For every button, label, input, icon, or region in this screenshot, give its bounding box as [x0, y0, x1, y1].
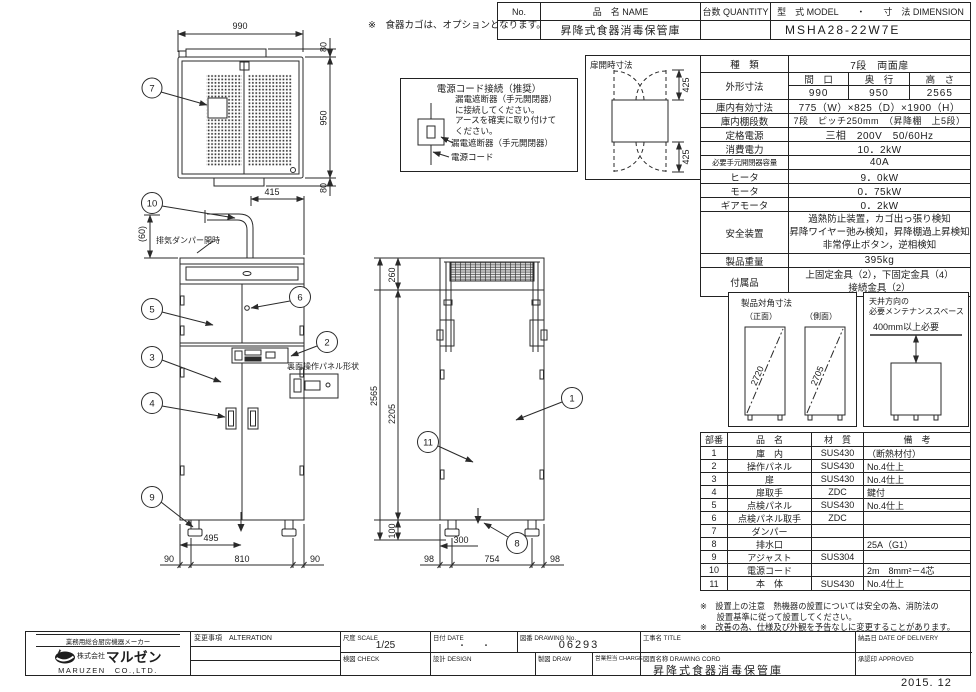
table-cell: [864, 551, 970, 563]
damper-note: 排気ダンパー開時: [156, 235, 220, 245]
door-swing-diagram: 425 425: [586, 56, 702, 179]
power-instruction-line: 漏電遮断器（手元開閉器）: [455, 94, 557, 105]
header-qty-label: 台数 QUANTITY: [701, 3, 771, 21]
dim-header: 奥 行: [849, 73, 909, 86]
project-title-label: 工事名 TITLE: [643, 633, 681, 642]
safety-devices: 過熱防止装置，カゴ出っ張り検知 昇降ワイヤー弛み検知，昇降棚過上昇検知 非常停止…: [789, 212, 970, 253]
table-cell: 10: [701, 564, 728, 576]
spec-value: 10．2kW: [789, 142, 970, 155]
table-cell: SUS304: [812, 551, 864, 563]
charge-label: 営業担当 CHARGE: [595, 654, 643, 662]
check-label: 検図 CHECK: [343, 654, 379, 663]
callout-1: 1: [516, 388, 583, 421]
callout-8-number: 8: [514, 539, 519, 550]
spec-label: 種 類: [701, 56, 789, 72]
power-box-instructions: 漏電遮断器（手元開閉器） に接続してください。 アースを確実に取り付けて くださ…: [455, 94, 557, 136]
power-box-title: 電源コード接続（推奨）: [401, 81, 577, 95]
table-cell: 扉取手: [728, 486, 812, 498]
callout-4-number: 4: [149, 399, 154, 410]
table-cell: No.4仕上: [864, 473, 970, 485]
maintenance-box: 天井方向の 必要メンテナンススペース 400mm以上必要: [863, 292, 969, 427]
side-left-margin-dim: 98: [424, 554, 434, 564]
header-table: No. 品 名 NAME 台数 QUANTITY 型 式 MODEL ・ 寸 法…: [497, 2, 971, 40]
side-total-height-dim: 2565: [369, 386, 379, 406]
spec-value: 0．2kW: [789, 198, 970, 211]
parts-header-row: 部番 品 名 材 質 備 考: [701, 433, 970, 447]
company-name-en: MARUZEN CO.,LTD.: [26, 665, 190, 676]
table-cell: 点検パネル: [728, 499, 812, 511]
maintenance-title-2: 必要メンテナンススペース: [869, 306, 964, 317]
date-value: ・ ・: [431, 640, 517, 651]
table-cell: 庫 内: [728, 447, 812, 459]
table-row: 9アジャストSUS304: [701, 551, 970, 564]
safety-line: 非常停止ボタン，逆相検知: [823, 239, 937, 252]
table-cell: [864, 512, 970, 524]
design-cell: 設計 DESIGN: [431, 653, 536, 675]
table-cell: ダンパー: [728, 525, 812, 537]
date-stamp: 2015. 12: [901, 677, 952, 689]
alteration-row: [191, 647, 340, 662]
accessory-line: 上固定金具（2），下固定金具（4）: [805, 269, 953, 282]
table-row: 3扉SUS430No.4仕上: [701, 473, 970, 486]
spec-row: 庫内棚段数 7段 ピッチ250mm （昇降棚 上5段）: [701, 114, 970, 128]
project-title-cell: 工事名 TITLE: [641, 632, 856, 652]
model-value: MSHA28-22W7E: [771, 21, 970, 39]
alteration-label: 変更事項 ALTERATION: [191, 632, 340, 647]
side-leg-height-dim: 100: [387, 523, 397, 538]
spec-label: ヒータ: [701, 170, 789, 183]
table-cell: [812, 538, 864, 550]
spec-value: 三相 200V 50/60Hz: [789, 128, 970, 141]
table-cell: [812, 525, 864, 537]
title-block: 業務用総合厨房機器メーカー 株式会社マルゼン MARUZEN CO.,LTD. …: [25, 631, 971, 676]
spec-label: 庫内有効寸法: [701, 100, 789, 113]
door-open-box: 扉開時寸法 425 425: [585, 55, 703, 180]
table-cell: 1: [701, 447, 728, 459]
header-name-label: 品 名 NAME: [541, 3, 701, 21]
callout-3-number: 3: [149, 353, 154, 364]
maruzen-logo-icon: [54, 649, 76, 664]
title-block-top-row: 尺度 SCALE 1/25 日付 DATE ・ ・ 図番 DRAWING No.…: [341, 632, 972, 653]
table-row: 7ダンパー: [701, 525, 970, 538]
spec-value: 40A: [789, 156, 970, 169]
design-label: 設計 DESIGN: [433, 654, 472, 663]
power-instruction-line: に接続してください。: [455, 105, 557, 116]
spec-value: 7段 ピッチ250mm （昇降棚 上5段）: [789, 114, 970, 127]
breaker-label: 漏電遮断器（手元開閉器）: [451, 137, 553, 149]
table-row: 5点検パネルSUS430No.4仕上: [701, 499, 970, 512]
callout-7: 7: [142, 78, 207, 105]
table-cell: （断熱材付）: [864, 447, 970, 459]
front-leg-span-dim: 810: [234, 554, 249, 564]
spec-row-safety: 安全装置 過熱防止装置，カゴ出っ張り検知 昇降ワイヤー弛み検知，昇降棚過上昇検知…: [701, 212, 970, 254]
drawing-name-value: 昇降式食器消毒保管庫: [641, 662, 855, 678]
spec-row: 定格電源 三相 200V 50/60Hz: [701, 128, 970, 142]
parts-header: 品 名: [728, 433, 812, 446]
table-cell: 7: [701, 525, 728, 537]
draw-cell: 製図 DRAW: [536, 653, 593, 675]
parts-header: 備 考: [864, 433, 970, 446]
table-cell: No.4仕上: [864, 460, 970, 472]
callout-9: 9: [142, 487, 194, 528]
table-row: 10電源コード2m 8mm²－4芯: [701, 564, 970, 577]
parts-header: 部番: [701, 433, 728, 446]
table-cell: 鍵付: [864, 486, 970, 498]
product-name-value: 昇降式食器消毒保管庫: [541, 21, 701, 39]
spec-row-outer-dims: 外形寸法 間 口 奥 行 高 さ 990 950 2565: [701, 73, 970, 100]
spec-label: 必要手元開閉器容量: [701, 156, 789, 169]
maker-box: 業務用総合厨房機器メーカー 株式会社マルゼン MARUZEN CO.,LTD.: [26, 632, 191, 675]
header-qty-value: [701, 21, 771, 39]
table-row: 11本 体SUS430No.4仕上: [701, 577, 970, 590]
table-cell: 扉: [728, 473, 812, 485]
power-instruction-line: アースを確実に取り付けて: [455, 115, 557, 126]
table-cell: SUS430: [812, 460, 864, 472]
date-cell: 日付 DATE ・ ・: [431, 632, 518, 652]
spec-row-kind: 種 類 7段 両面扉: [701, 56, 970, 73]
table-cell: 9: [701, 551, 728, 563]
spec-row: ギアモータ 0．2kW: [701, 198, 970, 212]
table-cell: 操作パネル: [728, 460, 812, 472]
callout-1-number: 1: [569, 394, 574, 405]
side-mid-height-dim: 2205: [387, 404, 397, 424]
alteration-box: 変更事項 ALTERATION: [191, 632, 341, 675]
spec-row: 必要手元開閉器容量 40A: [701, 156, 970, 170]
side-view: [437, 258, 547, 536]
safety-line: 過熱防止装置，カゴ出っ張り検知: [808, 213, 951, 226]
drawing-no-cell: 図番 DRAWING No. 06293: [518, 632, 641, 652]
plan-depth-dim: 950: [319, 110, 329, 125]
spec-value: 395kg: [789, 254, 970, 267]
drawing-sheet: 990 80 950 80 7: [0, 0, 976, 692]
company-logo-row: 株式会社マルゼン: [26, 647, 190, 665]
spec-row: 消費電力 10．2kW: [701, 142, 970, 156]
parts-body: 1庫 内SUS430（断熱材付）2操作パネルSUS430No.4仕上3扉SUS4…: [701, 447, 970, 590]
callout-9-number: 9: [149, 493, 154, 504]
callout-7-number: 7: [149, 84, 154, 95]
side-right-margin-dim: 98: [550, 554, 560, 564]
callout-2: 2: [291, 332, 338, 357]
table-row: 6点検パネル取手ZDC: [701, 512, 970, 525]
callout-6-number: 6: [297, 293, 302, 304]
table-cell: 5: [701, 499, 728, 511]
dim-value: 2565: [910, 86, 970, 99]
drawing-name-cell: 図面名称 DRAWING CORD 昇降式食器消毒保管庫: [641, 653, 856, 675]
cord-label: 電源コード: [451, 151, 494, 163]
table-cell: 11: [701, 577, 728, 590]
table-row: 4扉取手ZDC鍵付: [701, 486, 970, 499]
approved-cell: 承認印 APPROVED: [856, 653, 972, 675]
spec-table: 種 類 7段 両面扉 外形寸法 間 口 奥 行 高 さ 990 950 2565…: [700, 55, 971, 297]
plan-width-dim: 990: [232, 21, 247, 31]
dim-value: 990: [789, 86, 849, 99]
spec-label: ギアモータ: [701, 198, 789, 211]
spec-label: 安全装置: [701, 212, 789, 253]
plan-damper-opening: [208, 98, 227, 118]
callout-5: 5: [142, 299, 214, 326]
maintenance-diagram: [864, 331, 968, 426]
scale-value: 1/25: [341, 640, 430, 651]
draw-label: 製図 DRAW: [538, 654, 571, 663]
table-cell: 3: [701, 473, 728, 485]
table-row: 8排水口25A（G1）: [701, 538, 970, 551]
charge-cell: 営業担当 CHARGE: [593, 653, 641, 675]
callout-5-number: 5: [149, 305, 154, 316]
diagonal-diagram: 2720 2705: [729, 293, 856, 426]
callout-10-number: 10: [147, 199, 158, 210]
plan-top-offset-dim: 80: [319, 42, 329, 52]
plan-bottom-offset-dim: 80: [319, 183, 329, 193]
table-cell: 25A（G1）: [864, 538, 970, 550]
front-view: [180, 210, 304, 536]
note-line: 設置基準に従って設置してください。: [700, 612, 972, 623]
table-cell: 排水口: [728, 538, 812, 550]
table-cell: 2m 8mm²－4芯: [864, 564, 970, 576]
dim-value: 950: [849, 86, 909, 99]
table-cell: 本 体: [728, 577, 812, 590]
table-cell: 4: [701, 486, 728, 498]
door-open-top-dim: 425: [681, 77, 691, 92]
spec-value: 775（W）×825（D）×1900（H）: [789, 100, 970, 113]
spec-value: 0．75kW: [789, 184, 970, 197]
front-right-margin-dim: 90: [310, 554, 320, 564]
power-instruction-line: ください。: [455, 126, 557, 137]
drain-arrow-front: [238, 524, 245, 532]
outer-dims-grid: 間 口 奥 行 高 さ 990 950 2565: [789, 73, 970, 99]
side-leg-span-dim: 754: [484, 554, 499, 564]
parts-table: 部番 品 名 材 質 備 考 1庫 内SUS430（断熱材付）2操作パネルSUS…: [700, 432, 971, 591]
table-cell: 点検パネル取手: [728, 512, 812, 524]
table-cell: ZDC: [812, 486, 864, 498]
note-line: ※ 設置上の注意 熱機器の設置については安全の為、消防法の: [700, 601, 972, 612]
table-cell: SUS430: [812, 473, 864, 485]
drawing-no-value: 06293: [518, 639, 640, 651]
table-cell: SUS430: [812, 499, 864, 511]
table-cell: No.4仕上: [864, 499, 970, 511]
callout-11: 11: [418, 432, 474, 463]
delivery-date-cell: 納品日 DATE OF DELIVERY: [856, 632, 972, 652]
option-note: ※ 食器カゴは、オプションとなります。: [368, 17, 546, 31]
scale-cell: 尺度 SCALE 1/25: [341, 632, 431, 652]
safety-line: 昇降ワイヤー弛み検知，昇降棚過上昇検知: [789, 226, 969, 239]
spec-row: モータ 0．75kW: [701, 184, 970, 198]
table-cell: アジャスト: [728, 551, 812, 563]
front-drain-dim: 495: [203, 533, 218, 543]
callout-11-number: 11: [423, 438, 433, 449]
spec-row-weight: 製品重量 395kg: [701, 254, 970, 268]
front-dimensions: 415 (60) 排気ダンパー開時 裏面操作パネル形状 495 90 810 9…: [137, 187, 359, 568]
spec-label: 消費電力: [701, 142, 789, 155]
side-top-section-dim: 260: [387, 267, 397, 282]
table-row: 1庫 内SUS430（断熱材付）: [701, 447, 970, 460]
front-damper-gap-dim: (60): [137, 226, 147, 242]
callout-2-number: 2: [324, 338, 329, 349]
title-block-grid: 尺度 SCALE 1/25 日付 DATE ・ ・ 図番 DRAWING No.…: [341, 632, 972, 675]
table-cell: [864, 525, 970, 537]
callout-4: 4: [142, 393, 226, 418]
company-prefix: 株式会社: [77, 651, 105, 661]
spec-label: 製品重量: [701, 254, 789, 267]
plan-view: [178, 49, 303, 186]
table-cell: [812, 564, 864, 576]
side-drain-dim: 300: [453, 535, 468, 545]
spec-label: 定格電源: [701, 128, 789, 141]
table-cell: SUS430: [812, 577, 864, 590]
check-cell: 検図 CHECK: [341, 653, 431, 675]
spec-label: 庫内棚段数: [701, 114, 789, 127]
front-left-margin-dim: 90: [164, 554, 174, 564]
callout-6: 6: [251, 287, 311, 309]
spec-label: 外形寸法: [701, 73, 789, 99]
table-cell: SUS430: [812, 447, 864, 459]
header-model-label: 型 式 MODEL ・ 寸 法 DIMENSION: [771, 3, 970, 21]
front-pipe-dim: 415: [264, 187, 279, 197]
delivery-date-label: 納品日 DATE OF DELIVERY: [858, 633, 938, 642]
dim-header: 間 口: [789, 73, 849, 86]
diagonal-dims-box: 製品対角寸法 （正面） （側面） 2720 2705: [728, 292, 857, 427]
door-open-bottom-dim: 425: [681, 149, 691, 164]
rear-panel-note: 裏面操作パネル形状: [287, 361, 359, 371]
approved-label: 承認印 APPROVED: [858, 654, 914, 663]
table-cell: 2: [701, 460, 728, 472]
power-connection-box: 電源コード接続（推奨） 漏電遮断器（手元開閉器） に接続してください。 アースを…: [400, 78, 578, 172]
spec-value: 7段 両面扉: [789, 56, 970, 72]
table-cell: 電源コード: [728, 564, 812, 576]
callout-8: 8: [484, 523, 528, 554]
table-cell: ZDC: [812, 512, 864, 524]
alteration-row: [191, 661, 340, 675]
company-name: マルゼン: [106, 646, 162, 666]
table-cell: No.4仕上: [864, 577, 970, 590]
notes: ※ 設置上の注意 熱機器の設置については安全の為、消防法の 設置基準に従って設置…: [700, 601, 972, 633]
spec-row: ヒータ 9．0kW: [701, 170, 970, 184]
title-block-bottom-row: 検図 CHECK 設計 DESIGN 製図 DRAW 営業担当 CHARGE 図…: [341, 653, 972, 675]
table-cell: 6: [701, 512, 728, 524]
dim-header: 高 さ: [910, 73, 970, 86]
table-cell: 8: [701, 538, 728, 550]
parts-header: 材 質: [812, 433, 864, 446]
table-row: 2操作パネルSUS430No.4仕上: [701, 460, 970, 473]
spec-row: 庫内有効寸法 775（W）×825（D）×1900（H）: [701, 100, 970, 114]
spec-label: モータ: [701, 184, 789, 197]
spec-value: 9．0kW: [789, 170, 970, 183]
